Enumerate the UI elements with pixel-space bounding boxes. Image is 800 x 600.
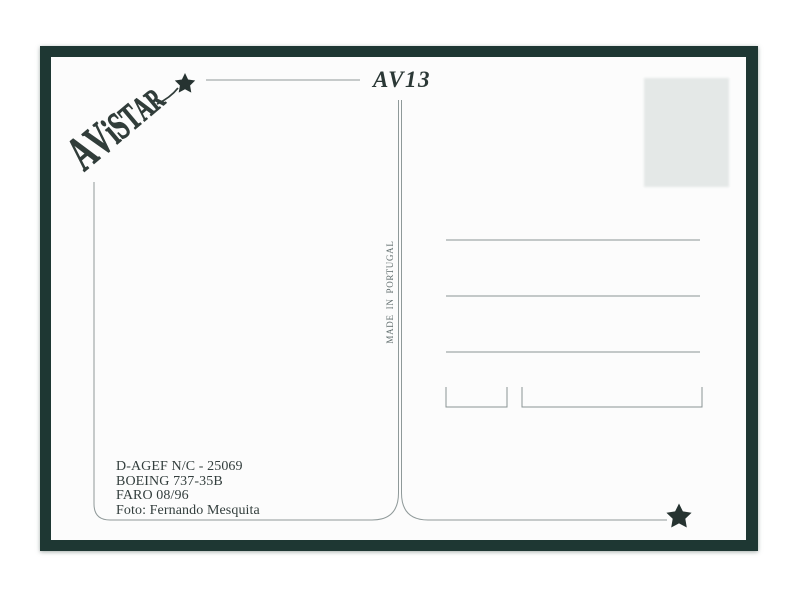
svg-text:AViSTAR: AViSTAR xyxy=(56,69,173,180)
